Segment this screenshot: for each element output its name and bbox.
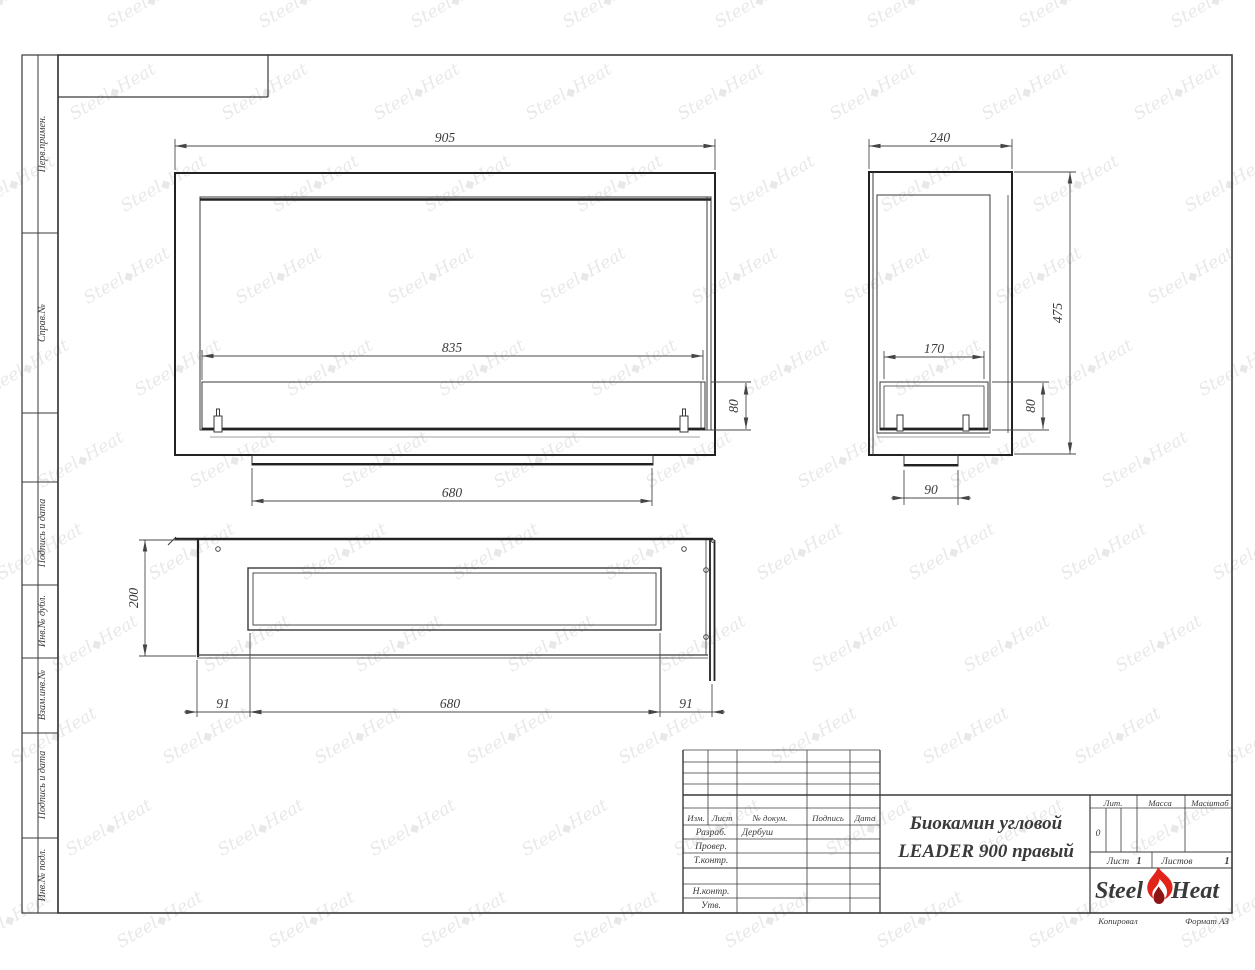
front-view: [175, 173, 715, 465]
row-tkontr: Т.контр.: [694, 856, 729, 866]
top-dim-offset-right: 91: [679, 696, 693, 711]
footer-format: Формат А3: [1185, 916, 1229, 926]
sheet-frame-labels: Перв.примен. Справ.№ Подпись и дата Инв.…: [37, 116, 48, 903]
strip-label-inv-podl: Инв.№ подл.: [37, 849, 48, 903]
side-dim-height: 475: [1050, 303, 1065, 324]
logo-steel-text: Steel: [1095, 878, 1143, 904]
top-dim-offset-left: 91: [216, 696, 230, 711]
front-dim-burner-height: 80: [726, 399, 741, 413]
side-dim-burner-height: 80: [1023, 399, 1038, 413]
side-view: [869, 172, 1012, 466]
drawing-title-line1: Биокамин угловой: [909, 813, 1062, 834]
lit-value: 0: [1096, 829, 1101, 839]
sheets-value: 1: [1225, 856, 1230, 867]
front-dim-base-width: 680: [442, 485, 463, 500]
top-dim-slot-length: 680: [440, 696, 461, 711]
sheets-label: Листов: [1160, 857, 1192, 867]
row-nkontr: Н.контр.: [692, 887, 730, 897]
side-dim-depth: 240: [930, 130, 951, 145]
col-podpis: Подпись: [811, 813, 844, 823]
scale-label: Масштаб: [1190, 798, 1229, 808]
title-block-texts: Изм. Лист № докум. Подпись Дата Разраб. …: [686, 798, 1229, 911]
engineering-drawing: Перв.примен. Справ.№ Подпись и дата Инв.…: [0, 0, 1255, 970]
col-data: Дата: [854, 813, 876, 823]
top-dim-depth: 200: [126, 588, 141, 609]
sheet-label: Лист: [1106, 857, 1129, 867]
footer-copied: Копировал: [1097, 916, 1138, 926]
lit-label: Лит.: [1102, 798, 1122, 808]
strip-label-podpis-data-2: Подпись и дата: [37, 751, 48, 821]
front-dim-burner-width: 835: [442, 340, 463, 355]
strip-label-podpis-data-1: Подпись и дата: [37, 499, 48, 569]
side-view-dimensions: [869, 139, 1076, 505]
mass-label: Масса: [1147, 798, 1172, 808]
row-utv: Утв.: [701, 901, 721, 911]
strip-label-vzam-inv: Взам.инв.№: [37, 670, 48, 720]
steelheat-logo: Steel Heat: [1095, 867, 1220, 904]
strip-label-sprav-no: Справ.№: [37, 304, 48, 342]
front-dim-overall-width: 905: [435, 130, 456, 145]
strip-label-perv-primen: Перв.примен.: [37, 116, 48, 174]
row-razrab: Разраб.: [695, 827, 727, 838]
side-dim-foot-width: 90: [924, 482, 938, 497]
drawing-title-line2: LEADER 900 правый: [897, 841, 1074, 862]
row-prover: Провер.: [694, 842, 727, 852]
developer-name: Дербуш: [741, 827, 773, 838]
top-view-dimensions: [139, 540, 725, 717]
sheet-value: 1: [1137, 856, 1142, 867]
logo-heat-text: Heat: [1170, 878, 1220, 904]
strip-label-inv-dubl: Инв.№ дубл.: [37, 595, 48, 648]
sheet-frame: [22, 55, 1232, 913]
col-list: Лист: [711, 813, 733, 823]
drawing-sheet: Steel◆HeatSteel◆HeatSteel◆HeatSteel◆Heat…: [0, 0, 1255, 970]
side-dim-burner-depth: 170: [924, 341, 945, 356]
flame-core-icon: [1154, 887, 1165, 905]
col-no-dokum: № докум.: [752, 813, 788, 823]
col-izm: Изм.: [686, 813, 704, 823]
front-view-dimensions: [175, 139, 751, 506]
